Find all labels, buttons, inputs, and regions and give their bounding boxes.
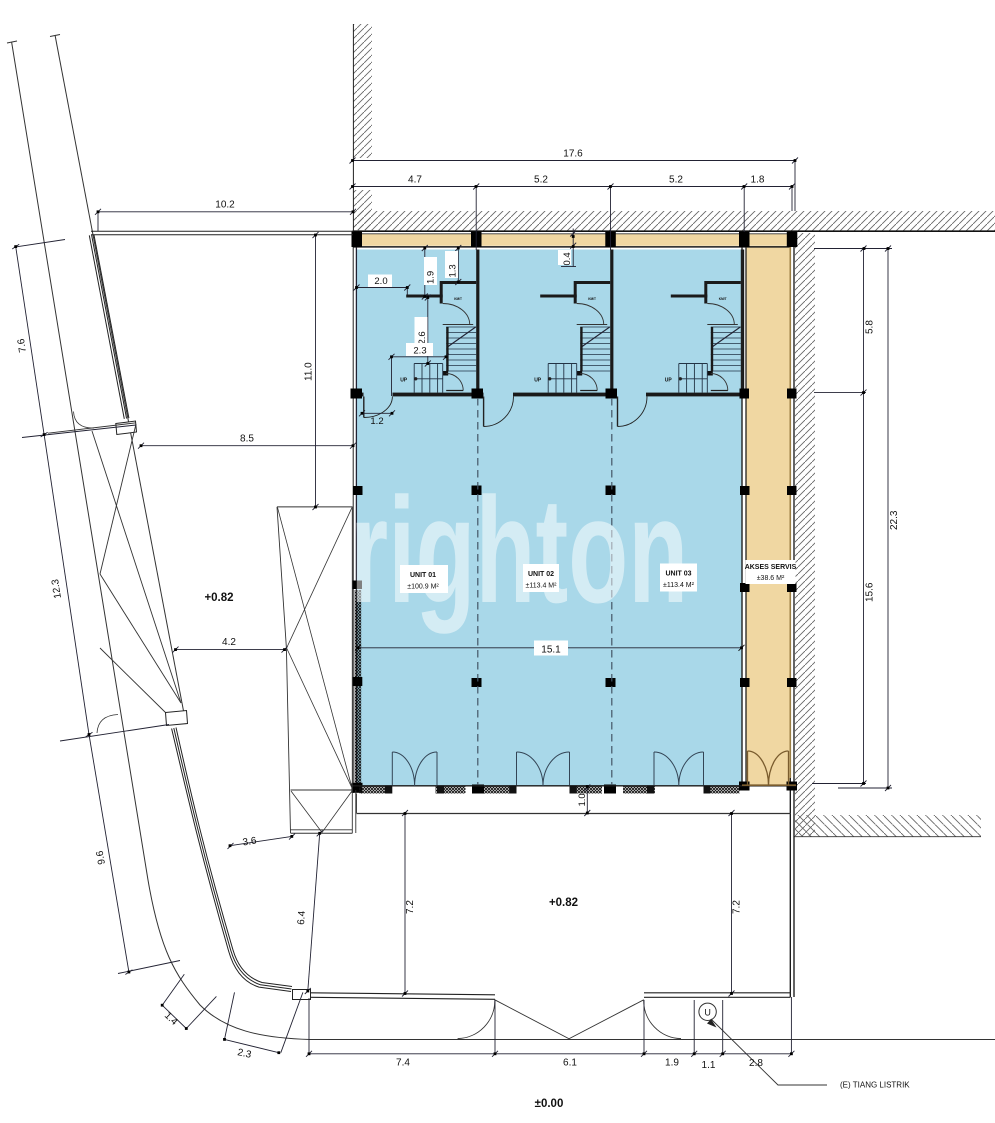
svg-text:1.9: 1.9	[426, 271, 437, 284]
svg-text:4.2: 4.2	[222, 637, 236, 648]
svg-text:0.4: 0.4	[562, 252, 573, 265]
svg-text:1.2: 1.2	[370, 416, 383, 427]
svg-text:5.2: 5.2	[534, 175, 548, 186]
svg-text:8.5: 8.5	[240, 434, 254, 445]
svg-text:7.6: 7.6	[16, 337, 29, 353]
svg-text:1.1: 1.1	[702, 1060, 716, 1071]
svg-text:UNIT 02: UNIT 02	[528, 571, 554, 578]
svg-text:±0.00: ±0.00	[535, 1098, 564, 1110]
svg-text:Brighton: Brighton	[279, 466, 688, 634]
svg-text:4.7: 4.7	[408, 175, 422, 186]
svg-text:7.4: 7.4	[396, 1058, 410, 1069]
svg-text:7.2: 7.2	[732, 900, 743, 914]
svg-text:2.3: 2.3	[413, 346, 426, 357]
svg-text:2.6: 2.6	[417, 331, 428, 344]
svg-text:+0.82: +0.82	[549, 897, 578, 909]
svg-text:15.1: 15.1	[541, 645, 561, 656]
svg-text:UNIT 01: UNIT 01	[410, 572, 436, 579]
svg-text:5.8: 5.8	[865, 320, 876, 334]
svg-text:10.2: 10.2	[215, 200, 235, 211]
svg-text:2.8: 2.8	[749, 1058, 763, 1069]
svg-text:AKSES SERVIS: AKSES SERVIS	[745, 564, 797, 571]
svg-text:7.2: 7.2	[405, 900, 416, 914]
svg-text:1.8: 1.8	[751, 175, 765, 186]
svg-text:15.6: 15.6	[865, 582, 876, 602]
svg-text:3.6: 3.6	[242, 835, 258, 848]
svg-text:6.4: 6.4	[296, 910, 308, 925]
svg-text:1.9: 1.9	[665, 1058, 679, 1069]
svg-text:+0.82: +0.82	[204, 592, 233, 604]
svg-text:±100.9 M²: ±100.9 M²	[407, 584, 439, 591]
svg-text:2.0: 2.0	[374, 276, 387, 287]
svg-text:22.3: 22.3	[889, 510, 900, 530]
svg-text:1.3: 1.3	[448, 264, 459, 277]
svg-text:1.0: 1.0	[577, 793, 588, 806]
svg-text:U: U	[704, 1007, 711, 1017]
svg-text:11.0: 11.0	[304, 362, 315, 381]
svg-text:17.6: 17.6	[563, 149, 583, 160]
svg-text:±113.4 M²: ±113.4 M²	[526, 583, 558, 590]
svg-text:±38.6 M²: ±38.6 M²	[757, 575, 785, 582]
svg-text:±113.4 M²: ±113.4 M²	[663, 582, 695, 589]
svg-text:5.2: 5.2	[669, 175, 683, 186]
svg-text:UNIT 03: UNIT 03	[665, 571, 691, 578]
svg-text:(E) TIANG LISTRIK: (E) TIANG LISTRIK	[840, 1081, 910, 1090]
svg-text:6.1: 6.1	[563, 1058, 577, 1069]
